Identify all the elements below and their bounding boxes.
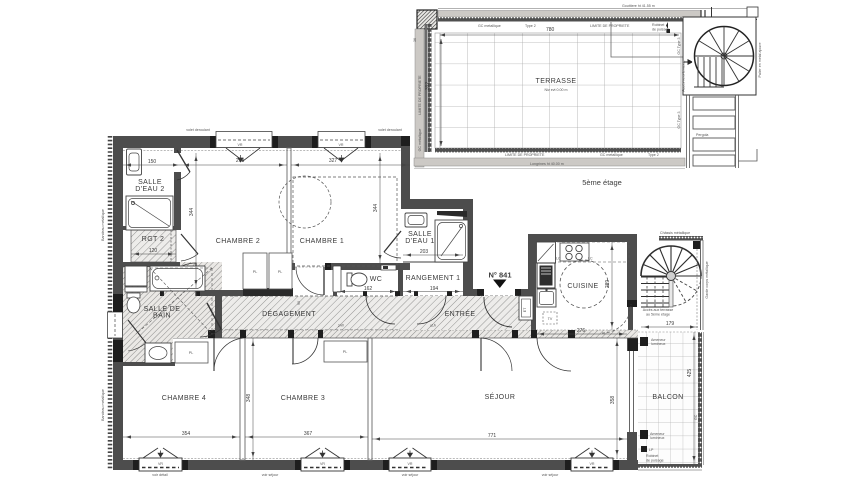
svg-text:344: 344 — [189, 208, 195, 217]
svg-text:179: 179 — [666, 321, 675, 327]
svg-text:LC: LC — [556, 257, 561, 261]
svg-text:354: 354 — [182, 431, 191, 437]
svg-text:5ème étage: 5ème étage — [582, 178, 622, 187]
svg-text:Type 2: Type 2 — [648, 153, 659, 157]
svg-text:BALCON: BALCON — [652, 394, 683, 401]
svg-text:CHAMBRE 1: CHAMBRE 1 — [300, 238, 344, 245]
svg-text:Garde corps métallique: Garde corps métallique — [705, 261, 709, 298]
svg-text:425: 425 — [687, 369, 693, 378]
svg-text:162: 162 — [364, 286, 373, 292]
svg-text:GC Type 3: GC Type 3 — [677, 37, 681, 54]
svg-text:Niv evt 0.00 m: Niv evt 0.00 m — [545, 88, 568, 92]
svg-text:392: 392 — [425, 82, 431, 91]
svg-text:voir détail: voir détail — [152, 473, 168, 477]
svg-text:VR: VR — [238, 143, 243, 147]
svg-text:DÉGAGEMENT: DÉGAGEMENT — [262, 309, 316, 318]
svg-text:ENTRÉE: ENTRÉE — [445, 309, 476, 318]
svg-text:volet deroulant: volet deroulant — [186, 128, 210, 132]
svg-text:344: 344 — [373, 204, 379, 213]
svg-text:VR: VR — [590, 462, 595, 466]
svg-text:CHAMBRE 2: CHAMBRE 2 — [216, 238, 260, 245]
svg-text:LIMITE DE PROPRIETE: LIMITE DE PROPRIETE — [590, 24, 630, 28]
svg-text:Type 2: Type 2 — [525, 24, 536, 28]
svg-text:SALLE: SALLE — [408, 231, 432, 238]
svg-text:PL: PL — [253, 270, 257, 274]
svg-text:SÉJOUR: SÉJOUR — [485, 392, 516, 401]
svg-text:36: 36 — [413, 38, 417, 42]
svg-text:273: 273 — [236, 158, 245, 164]
svg-text:Palier en metal ajoure: Palier en metal ajoure — [758, 43, 762, 78]
svg-text:voir séjour: voir séjour — [542, 473, 559, 477]
svg-text:289: 289 — [605, 280, 611, 289]
svg-text:Longrines ht 40.00 m: Longrines ht 40.00 m — [530, 162, 564, 166]
svg-text:voir séjour: voir séjour — [262, 473, 279, 477]
svg-text:Châssis métallique: Châssis métallique — [660, 231, 690, 235]
svg-text:de puisage: de puisage — [646, 459, 664, 463]
svg-text:GC metallique: GC metallique — [600, 153, 623, 157]
svg-text:PL: PL — [189, 351, 193, 355]
svg-text:PL: PL — [278, 270, 282, 274]
svg-text:VR: VR — [158, 462, 163, 466]
svg-text:Bandeau metallique: Bandeau metallique — [101, 389, 105, 421]
svg-text:416: 416 — [430, 323, 436, 328]
svg-text:CHAMBRE 4: CHAMBRE 4 — [162, 395, 206, 402]
svg-text:GC métallique: GC métallique — [418, 129, 422, 152]
svg-text:volet deroulant: volet deroulant — [378, 128, 402, 132]
svg-text:203: 203 — [420, 249, 429, 255]
svg-text:GC metallique: GC metallique — [478, 24, 501, 28]
svg-text:358: 358 — [610, 396, 616, 405]
svg-text:348: 348 — [246, 394, 252, 403]
svg-text:327: 327 — [329, 158, 338, 164]
svg-text:SALLE: SALLE — [138, 179, 162, 186]
svg-text:LC: LC — [588, 257, 593, 261]
svg-text:LIMITE DE PROPRIETE: LIMITE DE PROPRIETE — [505, 153, 545, 157]
svg-text:240: 240 — [338, 323, 344, 328]
svg-text:194: 194 — [430, 286, 439, 292]
svg-text:GC Type 3: GC Type 3 — [677, 111, 681, 128]
svg-text:TERRASSE: TERRASSE — [536, 78, 577, 85]
svg-text:LP: LP — [649, 448, 654, 452]
svg-text:CHAMBRE 3: CHAMBRE 3 — [281, 395, 325, 402]
svg-text:TV: TV — [548, 317, 553, 321]
svg-text:VR: VR — [339, 143, 344, 147]
svg-text:780: 780 — [546, 27, 555, 33]
svg-text:VR: VR — [408, 462, 413, 466]
svg-text:276: 276 — [577, 328, 586, 334]
svg-text:Robinet: Robinet — [646, 454, 658, 458]
svg-text:120: 120 — [149, 248, 158, 254]
svg-text:Robinet: Robinet — [652, 23, 664, 27]
svg-text:150: 150 — [148, 159, 157, 165]
svg-text:771: 771 — [488, 433, 497, 439]
svg-text:RANGEMENT 1: RANGEMENT 1 — [406, 275, 461, 282]
svg-text:LIMITE DE PROPRIETE: LIMITE DE PROPRIETE — [418, 75, 422, 115]
svg-text:N° 841: N° 841 — [488, 271, 511, 280]
svg-text:CUISINE: CUISINE — [567, 283, 598, 290]
svg-text:Bandeau metallique: Bandeau metallique — [101, 209, 105, 241]
svg-text:RGT 2: RGT 2 — [142, 236, 165, 243]
svg-text:lumineux: lumineux — [651, 342, 666, 346]
svg-text:Accès vers terrasse: Accès vers terrasse — [682, 60, 686, 92]
svg-text:D'EAU 1: D'EAU 1 — [405, 238, 434, 245]
svg-text:Pergola: Pergola — [696, 133, 708, 137]
svg-text:90: 90 — [297, 301, 301, 305]
svg-text:WC: WC — [370, 276, 382, 283]
svg-text:BAIN: BAIN — [153, 313, 171, 320]
svg-text:GC: GC — [694, 414, 698, 420]
svg-text:D'EAU 2: D'EAU 2 — [135, 186, 164, 193]
svg-text:VR: VR — [320, 462, 325, 466]
svg-text:Gouttiere ht 41.55 m: Gouttiere ht 41.55 m — [622, 4, 655, 8]
svg-text:Accès aux terrasse: Accès aux terrasse — [643, 308, 674, 312]
svg-text:367: 367 — [304, 431, 313, 437]
svg-text:au 5ème étage: au 5ème étage — [646, 313, 670, 317]
svg-text:PL: PL — [343, 350, 347, 354]
svg-text:ET: ET — [523, 307, 527, 312]
svg-text:voir séjour: voir séjour — [402, 473, 419, 477]
svg-text:lumineux: lumineux — [650, 436, 665, 440]
